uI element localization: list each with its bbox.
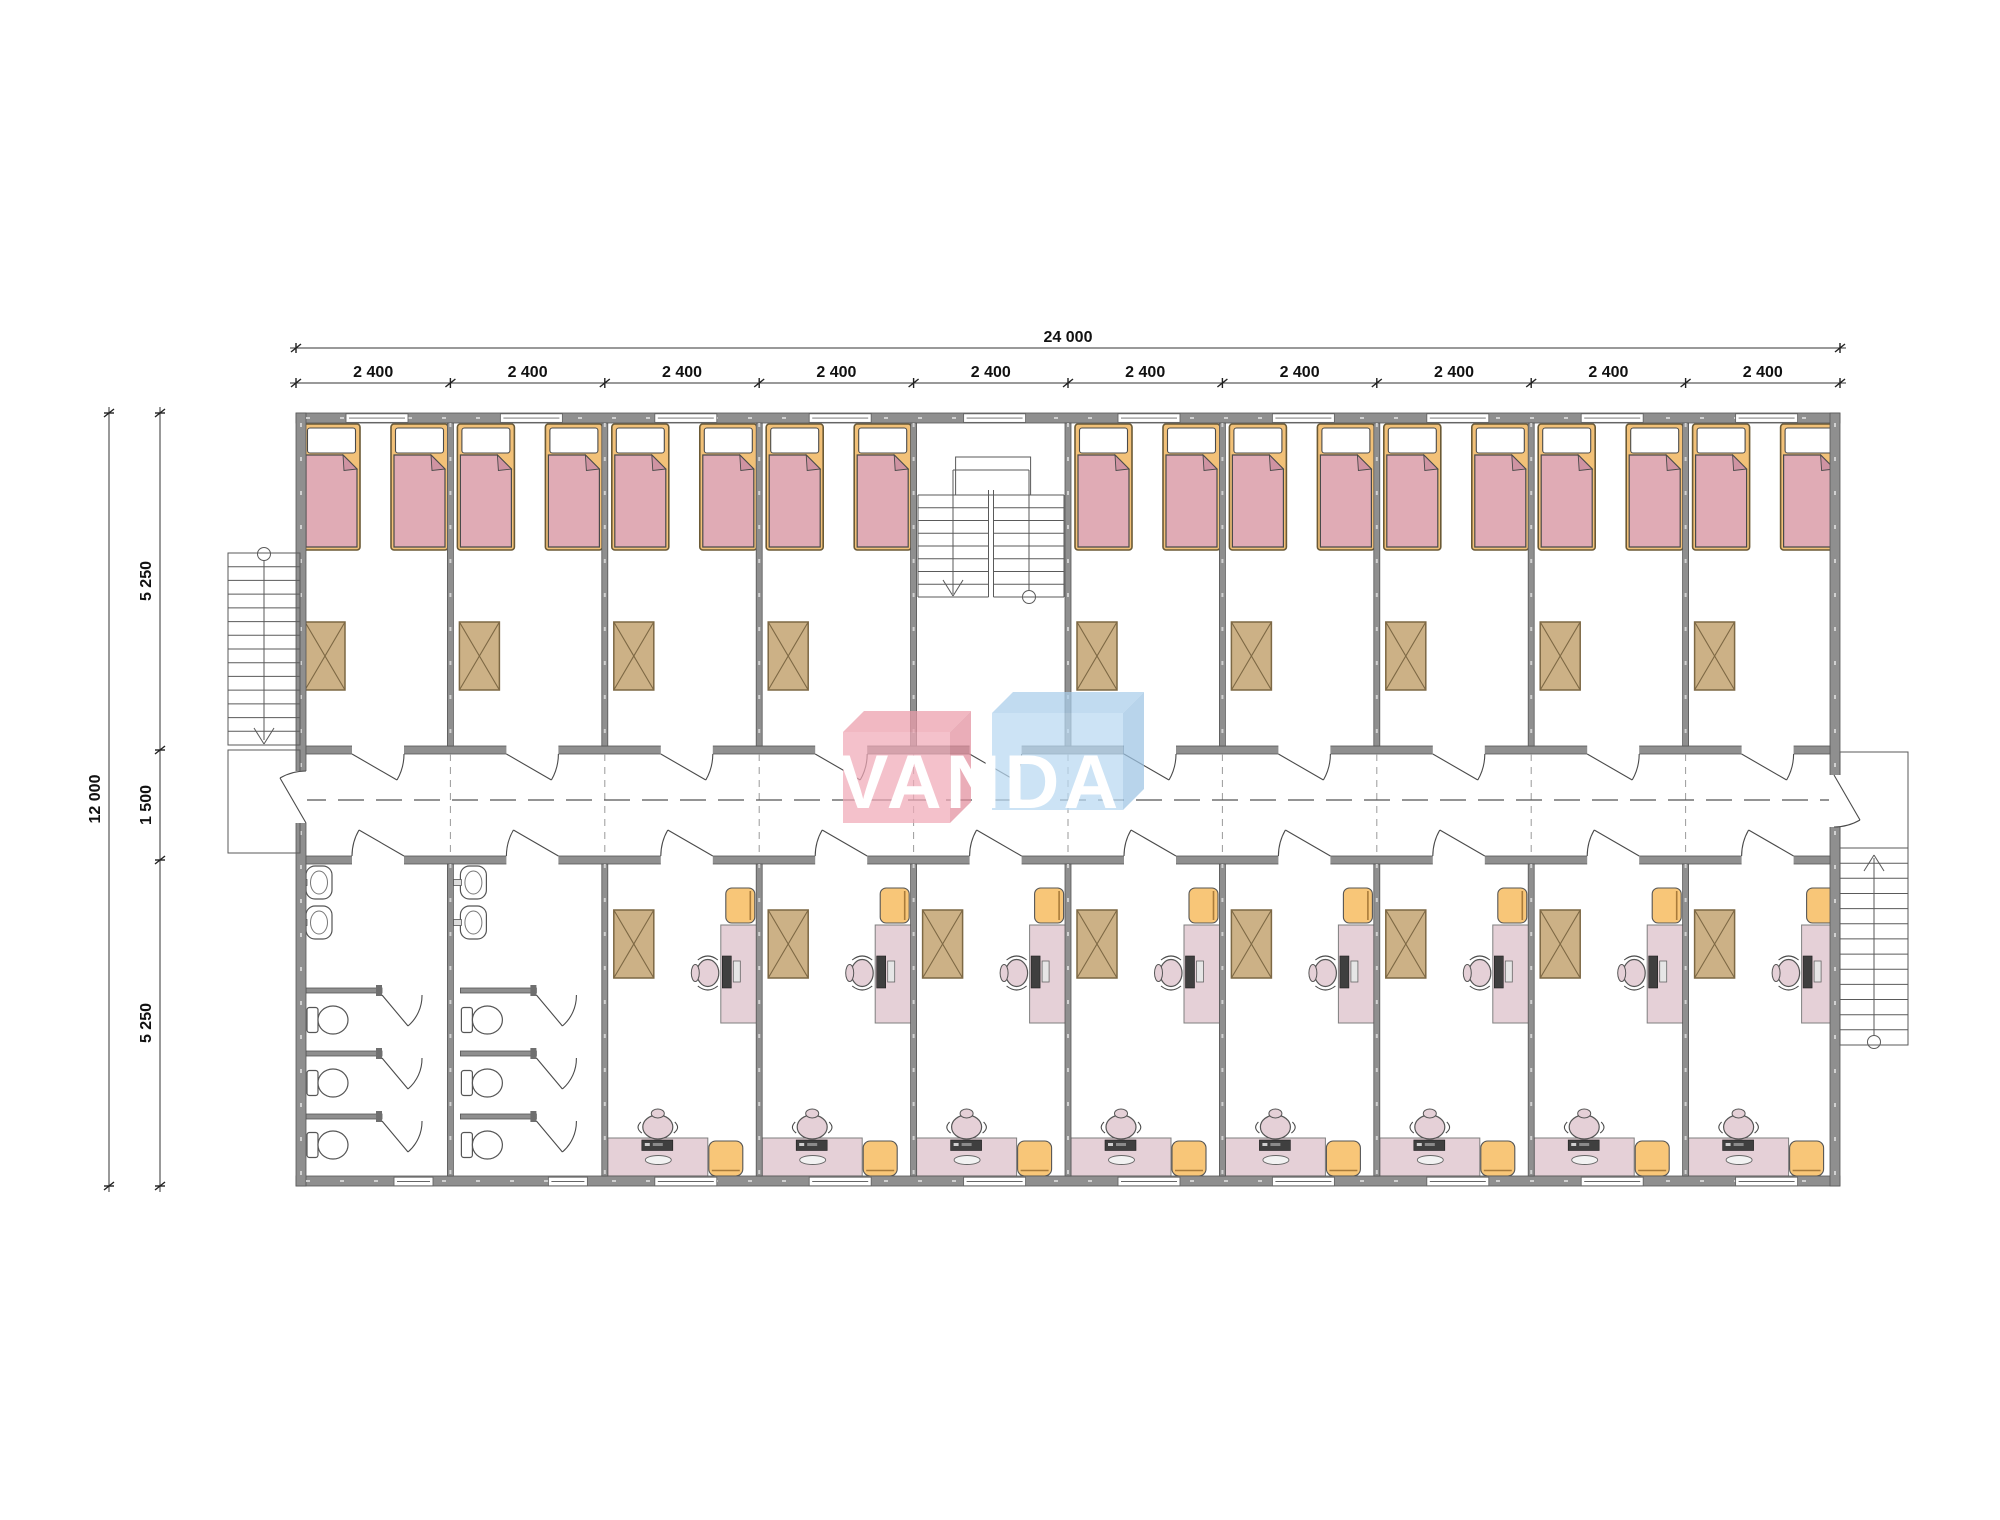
- stairs-right-exterior: [1829, 752, 1908, 1049]
- entry-landing-east: [1840, 752, 1908, 848]
- study-room-1: [608, 888, 759, 1176]
- study-room-3: [917, 888, 1068, 1176]
- floorplan-canvas: 24 000 2 400 2 400 2 400 2 400 2 400 2 4…: [0, 0, 2000, 1520]
- bedroom-7: [1384, 424, 1529, 690]
- study-room-7: [1534, 888, 1685, 1176]
- dimension-label-module-1: 2 400: [353, 364, 393, 381]
- bathroom-1: [299, 866, 422, 1159]
- bedroom-3: [612, 424, 757, 690]
- dimension-label-total-width: 24 000: [1044, 329, 1093, 346]
- dimension-label-module-2: 2 400: [508, 364, 548, 381]
- dimension-label-module-4: 2 400: [816, 364, 856, 381]
- bedroom-6: [1229, 424, 1374, 690]
- bedroom-2: [457, 424, 602, 690]
- bedroom-8: [1538, 424, 1683, 690]
- entry-landing-west: [228, 750, 300, 853]
- stair-landing: [956, 457, 1031, 495]
- dimension-label-top-depth: 5 250: [138, 561, 155, 601]
- logo-text: VANDA: [838, 740, 1123, 825]
- study-room-6: [1380, 888, 1531, 1176]
- dimension-label-bottom-depth: 5 250: [138, 1003, 155, 1043]
- bedroom-5: [1075, 424, 1220, 690]
- stair-direction-path: [254, 548, 274, 745]
- logo-vanda: VANDA: [838, 692, 1144, 825]
- bedroom-1: [303, 424, 448, 690]
- bedroom-4: [766, 424, 911, 690]
- dimensions-left: 12 000 5 250 1 500 5 250: [87, 407, 165, 1192]
- stairs-central: [918, 457, 1064, 604]
- dimension-label-module-6: 2 400: [1125, 364, 1165, 381]
- stair-direction-path: [1864, 855, 1884, 1049]
- dimension-label-module-3: 2 400: [662, 364, 702, 381]
- stairs-left-exterior: [228, 548, 307, 854]
- dimension-label-total-depth: 12 000: [87, 774, 104, 823]
- study-room-4: [1071, 888, 1222, 1176]
- stair-direction-path: [943, 470, 1036, 604]
- bathroom-2: [453, 866, 576, 1159]
- dimension-label-module-7: 2 400: [1280, 364, 1320, 381]
- bedroom-9: [1693, 424, 1838, 690]
- entry-door-west: [280, 771, 307, 823]
- stair-steps: [918, 490, 1064, 597]
- floor-plan-drawing: 24 000 2 400 2 400 2 400 2 400 2 400 2 4…: [0, 0, 2000, 1520]
- study-room-5: [1225, 888, 1376, 1176]
- dimension-label-corridor-depth: 1 500: [138, 785, 155, 825]
- study-room-8: [1689, 888, 1840, 1176]
- dimension-label-module-8: 2 400: [1434, 364, 1474, 381]
- dimension-label-module-5: 2 400: [971, 364, 1011, 381]
- dimension-label-module-10: 2 400: [1743, 364, 1783, 381]
- entry-door-east: [1829, 775, 1860, 827]
- study-room-2: [762, 888, 913, 1176]
- dimension-label-module-9: 2 400: [1588, 364, 1628, 381]
- dimensions-top: 24 000 2 400 2 400 2 400 2 400 2 400 2 4…: [290, 329, 1846, 388]
